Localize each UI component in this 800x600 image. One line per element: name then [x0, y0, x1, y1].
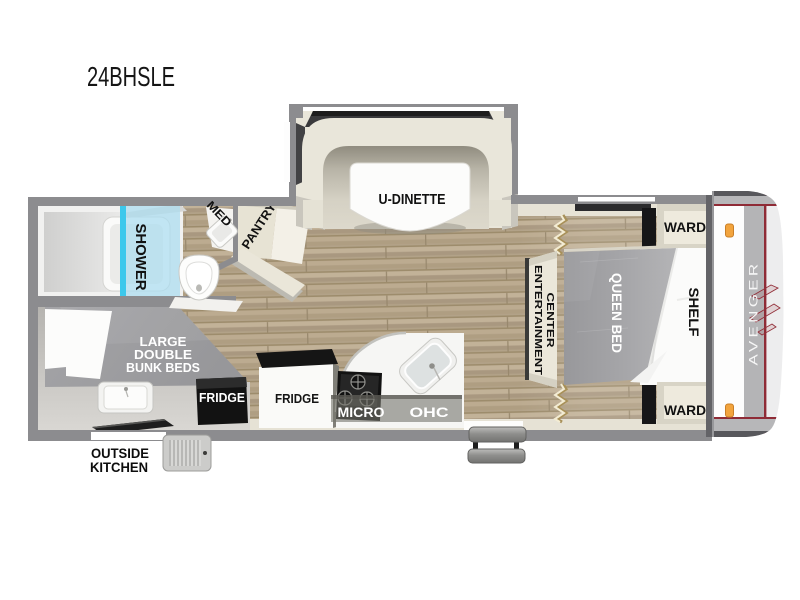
- svg-text:KITCHEN: KITCHEN: [90, 459, 148, 475]
- svg-text:SHELF: SHELF: [686, 288, 701, 337]
- svg-text:ENTERTAINMENT: ENTERTAINMENT: [532, 265, 544, 376]
- svg-text:AVENGER: AVENGER: [747, 261, 761, 366]
- svg-text:MICRO: MICRO: [338, 404, 385, 420]
- svg-text:BUNK BEDS: BUNK BEDS: [126, 360, 200, 375]
- svg-text:U-DINETTE: U-DINETTE: [379, 191, 446, 208]
- svg-text:SHOWER: SHOWER: [132, 224, 148, 292]
- svg-text:QUEEN BED: QUEEN BED: [609, 273, 624, 353]
- svg-text:FRIDGE: FRIDGE: [199, 391, 245, 405]
- svg-text:WARD: WARD: [664, 402, 706, 418]
- svg-text:WARD: WARD: [664, 219, 706, 235]
- svg-text:24BHSLE: 24BHSLE: [87, 61, 175, 92]
- svg-text:OHC: OHC: [410, 404, 449, 420]
- svg-text:CENTER: CENTER: [544, 293, 556, 349]
- svg-text:FRIDGE: FRIDGE: [275, 391, 319, 406]
